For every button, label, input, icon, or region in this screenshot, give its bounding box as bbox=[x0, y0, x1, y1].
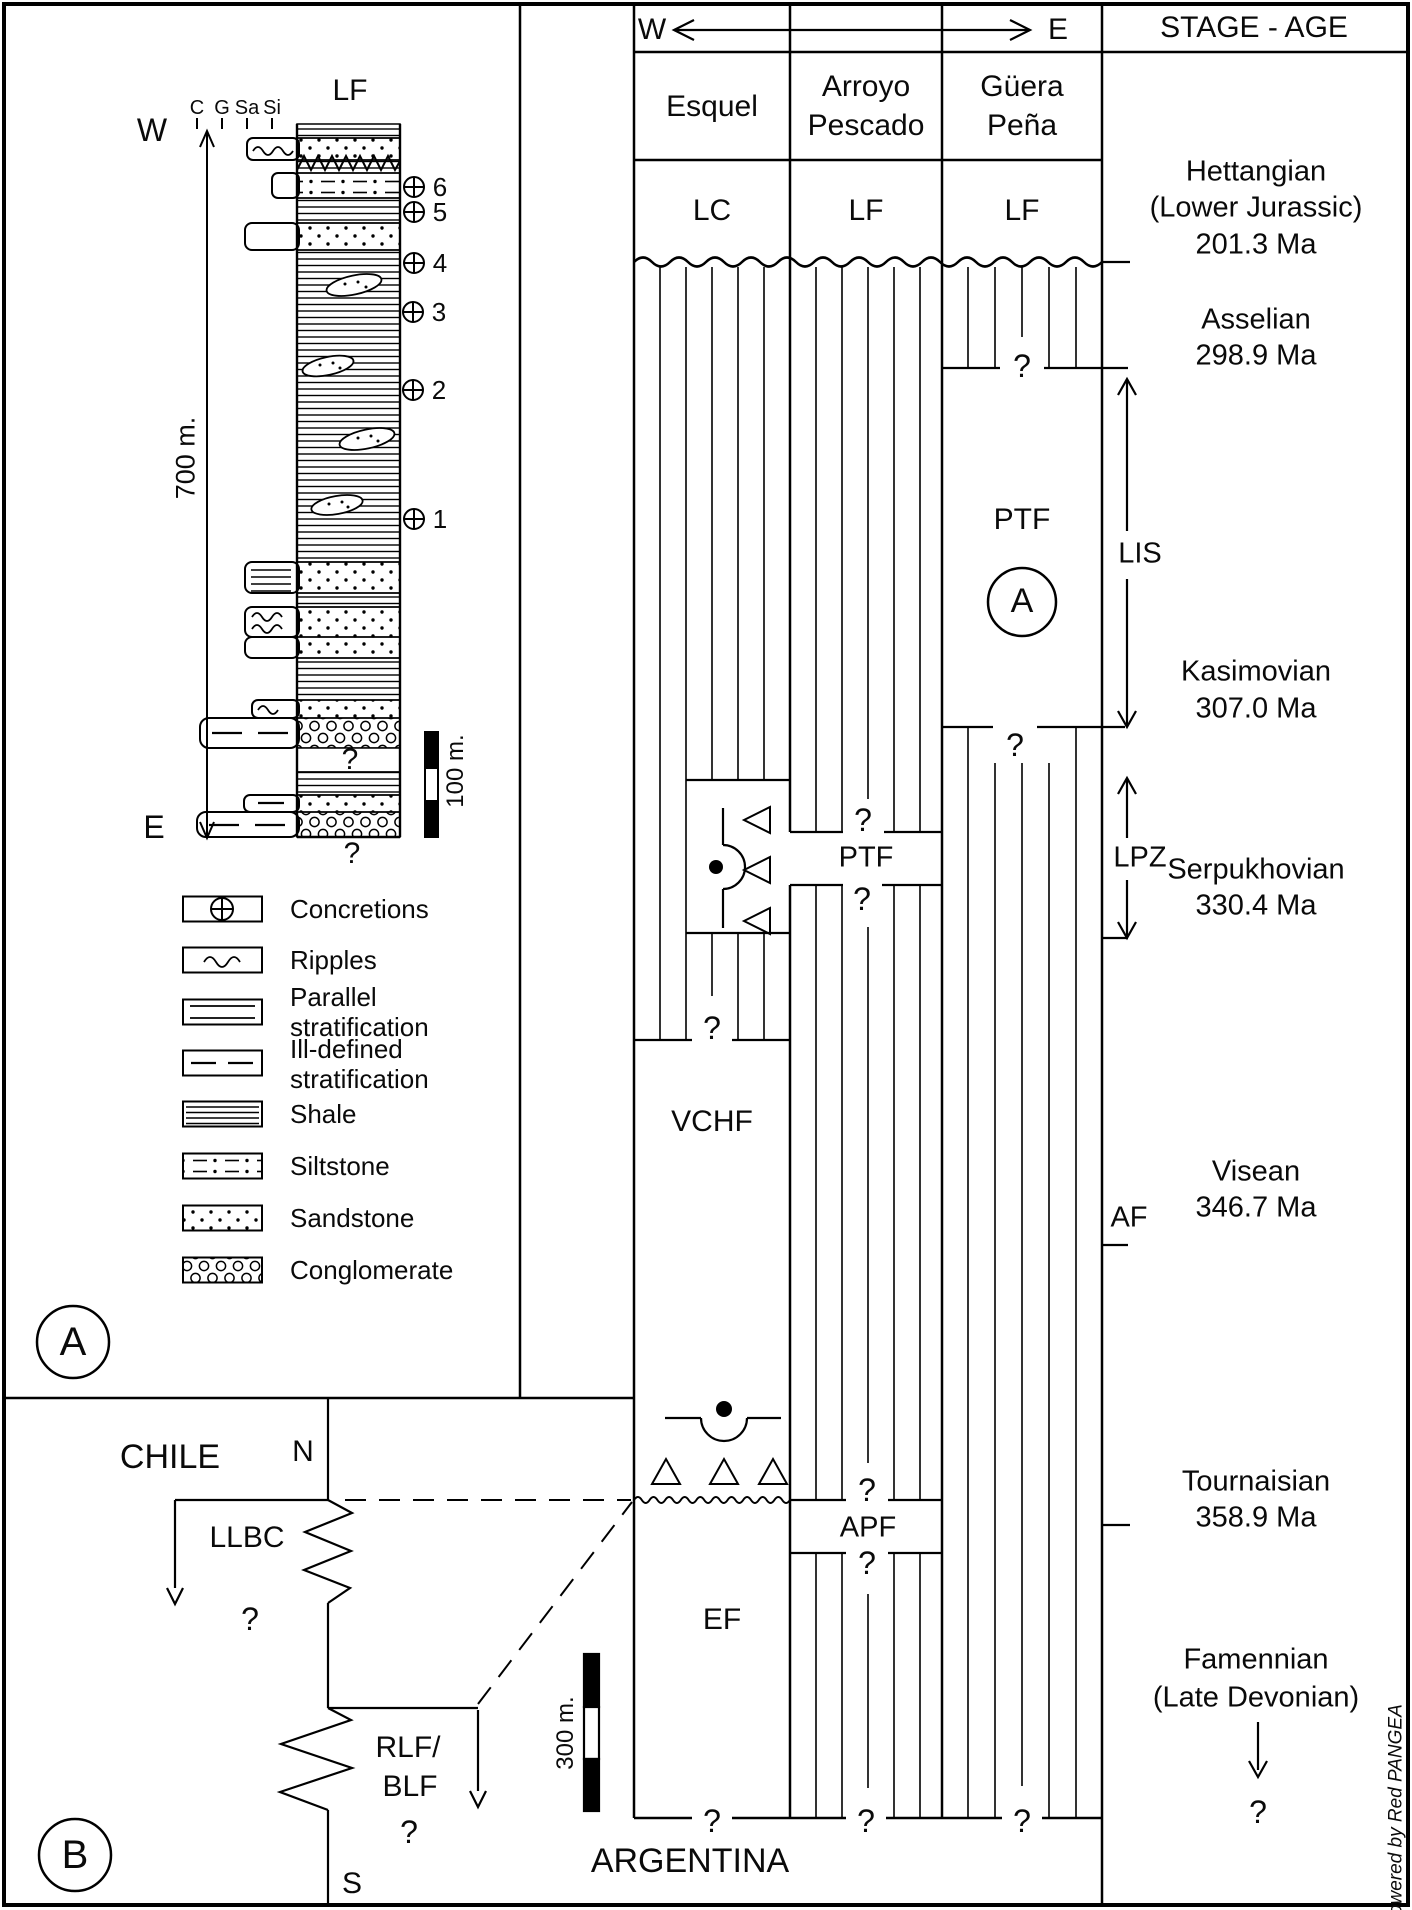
query-mark-section-base: ? bbox=[344, 839, 361, 869]
query-mark-guera-base: ? bbox=[1013, 1805, 1031, 1837]
query-mark-apf-top: ? bbox=[858, 1474, 876, 1506]
scale-bar-100m-label: 100 m. bbox=[444, 734, 468, 807]
legend-swatches bbox=[183, 897, 262, 1283]
formation-label-ptf-guera: PTF bbox=[994, 505, 1051, 535]
query-mark-esquel-vchf: ? bbox=[703, 1012, 721, 1044]
concretion-number-4: 4 bbox=[433, 250, 447, 276]
stage-tournaisian: Tournaisian bbox=[1182, 1468, 1330, 1497]
age-kasimovian: 307.0 Ma bbox=[1196, 695, 1317, 724]
famennian-down-arrow bbox=[1249, 1722, 1267, 1777]
vchf-base-wavy-line bbox=[634, 1497, 790, 1503]
age-serpukhovian: 330.4 Ma bbox=[1196, 892, 1317, 921]
compass-east-label: E bbox=[1048, 15, 1068, 45]
stage-serpukhovian: Serpukhovian bbox=[1167, 856, 1344, 885]
query-mark-ptf-bottom: ? bbox=[853, 883, 871, 915]
grain-size-g-label: G bbox=[214, 98, 230, 118]
stratigraphic-correlation-figure: W E STAGE - AGE Esquel Arroyo Pescado Gü… bbox=[0, 0, 1412, 1910]
unit-label-blf: BLF bbox=[382, 1772, 437, 1802]
triangle-clast-icons-up bbox=[652, 1459, 787, 1484]
stage-famennian-sub: (Late Devonian) bbox=[1153, 1684, 1359, 1713]
query-mark-esquel-base: ? bbox=[703, 1805, 721, 1837]
correlation-grid bbox=[634, 4, 1406, 1905]
query-mark-ptf-top: ? bbox=[854, 804, 872, 836]
legend-label-shale: Shale bbox=[290, 1101, 357, 1127]
formation-label-lpz: LPZ bbox=[1113, 844, 1166, 873]
unit-lc-esquel: LC bbox=[693, 196, 731, 226]
query-mark-llbc: ? bbox=[241, 1603, 259, 1635]
query-mark-famennian: ? bbox=[1249, 1796, 1267, 1828]
fossil-symbol-horizontal bbox=[665, 1401, 781, 1441]
grain-size-si-label: Si bbox=[263, 98, 281, 118]
panel-b-badge-letter: B bbox=[62, 1835, 89, 1875]
unconformity-wavy-line bbox=[634, 258, 1102, 267]
stage-visean: Visean bbox=[1212, 1158, 1300, 1187]
concretion-number-1: 1 bbox=[433, 506, 447, 532]
formation-label-lis: LIS bbox=[1118, 540, 1162, 569]
legend-label-ill-defined-1: Ill-defined bbox=[290, 1036, 403, 1062]
locality-guera-line1: Güera bbox=[980, 72, 1063, 102]
legend-label-parallel-1: Parallel bbox=[290, 984, 377, 1010]
locality-guera-line2: Peña bbox=[987, 111, 1057, 141]
locality-arroyo-line2: Pescado bbox=[808, 111, 925, 141]
section-scale-bar bbox=[425, 732, 438, 837]
stage-famennian: Famennian bbox=[1183, 1646, 1328, 1675]
panel-a-badge-letter: A bbox=[60, 1322, 87, 1362]
unit-label-rlf: RLF/ bbox=[375, 1733, 440, 1763]
scale-bar-300m-label: 300 m. bbox=[554, 1696, 578, 1769]
column-hatching bbox=[660, 267, 1076, 1818]
legend-label-ripples: Ripples bbox=[290, 947, 377, 973]
stage-kasimovian: Kasimovian bbox=[1181, 658, 1331, 687]
unit-label-llbc: LLBC bbox=[209, 1523, 284, 1553]
stage-hettangian: Hettangian bbox=[1186, 158, 1326, 187]
query-mark-guera-top: ? bbox=[1013, 350, 1031, 382]
formation-label-ptf-mid: PTF bbox=[839, 844, 894, 873]
query-mark-guera-bottom: ? bbox=[1006, 729, 1024, 761]
formation-label-ef: EF bbox=[703, 1605, 741, 1635]
stage-age-header: STAGE - AGE bbox=[1160, 13, 1348, 43]
query-mark-rlf-blf: ? bbox=[400, 1816, 418, 1848]
section-formation-lf-label: LF bbox=[332, 76, 367, 106]
grain-size-c-label: C bbox=[190, 98, 204, 118]
grain-size-sa-label: Sa bbox=[235, 98, 259, 118]
north-label: N bbox=[292, 1437, 314, 1467]
locality-arroyo-line1: Arroyo bbox=[822, 72, 910, 102]
age-visean: 346.7 Ma bbox=[1196, 1194, 1317, 1223]
age-asselian: 298.9 Ma bbox=[1196, 342, 1317, 371]
unit-lf-guera: LF bbox=[1004, 196, 1039, 226]
unit-lf-arroyo: LF bbox=[848, 196, 883, 226]
stage-hettangian-sub: (Lower Jurassic) bbox=[1150, 194, 1363, 223]
credit-text: Powered by Red PANGEA bbox=[1387, 1704, 1406, 1910]
south-label: S bbox=[342, 1869, 362, 1899]
legend-label-concretions: Concretions bbox=[290, 896, 429, 922]
query-mark-arroyo-base: ? bbox=[857, 1805, 875, 1837]
panel-a-reference-letter: A bbox=[1011, 584, 1034, 618]
section-thickness-label: 700 m. bbox=[173, 417, 200, 500]
section-west-label: W bbox=[137, 114, 167, 146]
concretion-number-3: 3 bbox=[432, 299, 446, 325]
country-chile-label: CHILE bbox=[120, 1440, 220, 1474]
triangle-clast-icons-left bbox=[744, 807, 770, 934]
formation-label-vchf: VCHF bbox=[671, 1107, 753, 1137]
west-east-arrow bbox=[674, 20, 1030, 40]
concretion-markers bbox=[403, 177, 424, 529]
fossil-symbol-vertical bbox=[709, 808, 745, 928]
legend-label-ill-defined-2: stratification bbox=[290, 1066, 429, 1092]
legend-label-sandstone: Sandstone bbox=[290, 1205, 414, 1231]
age-hettangian: 201.3 Ma bbox=[1196, 231, 1317, 260]
legend-label-siltstone: Siltstone bbox=[290, 1153, 390, 1179]
section-east-label: E bbox=[143, 811, 164, 843]
legend-label-conglomerate: Conglomerate bbox=[290, 1257, 453, 1283]
locality-esquel: Esquel bbox=[666, 92, 758, 122]
country-argentina-label: ARGENTINA bbox=[591, 1844, 789, 1878]
age-tournaisian: 358.9 Ma bbox=[1196, 1504, 1317, 1533]
concretion-number-2: 2 bbox=[432, 377, 446, 403]
compass-west-label: W bbox=[638, 15, 666, 45]
formation-label-apf: APF bbox=[840, 1514, 896, 1543]
formation-label-af: AF bbox=[1110, 1204, 1147, 1233]
measured-section bbox=[197, 118, 438, 838]
stage-asselian: Asselian bbox=[1201, 306, 1311, 335]
query-mark-apf-bottom: ? bbox=[858, 1547, 876, 1579]
query-mark-section-gap: ? bbox=[342, 745, 359, 775]
concretion-number-5: 5 bbox=[433, 199, 447, 225]
formation-boundaries bbox=[634, 262, 1130, 1553]
